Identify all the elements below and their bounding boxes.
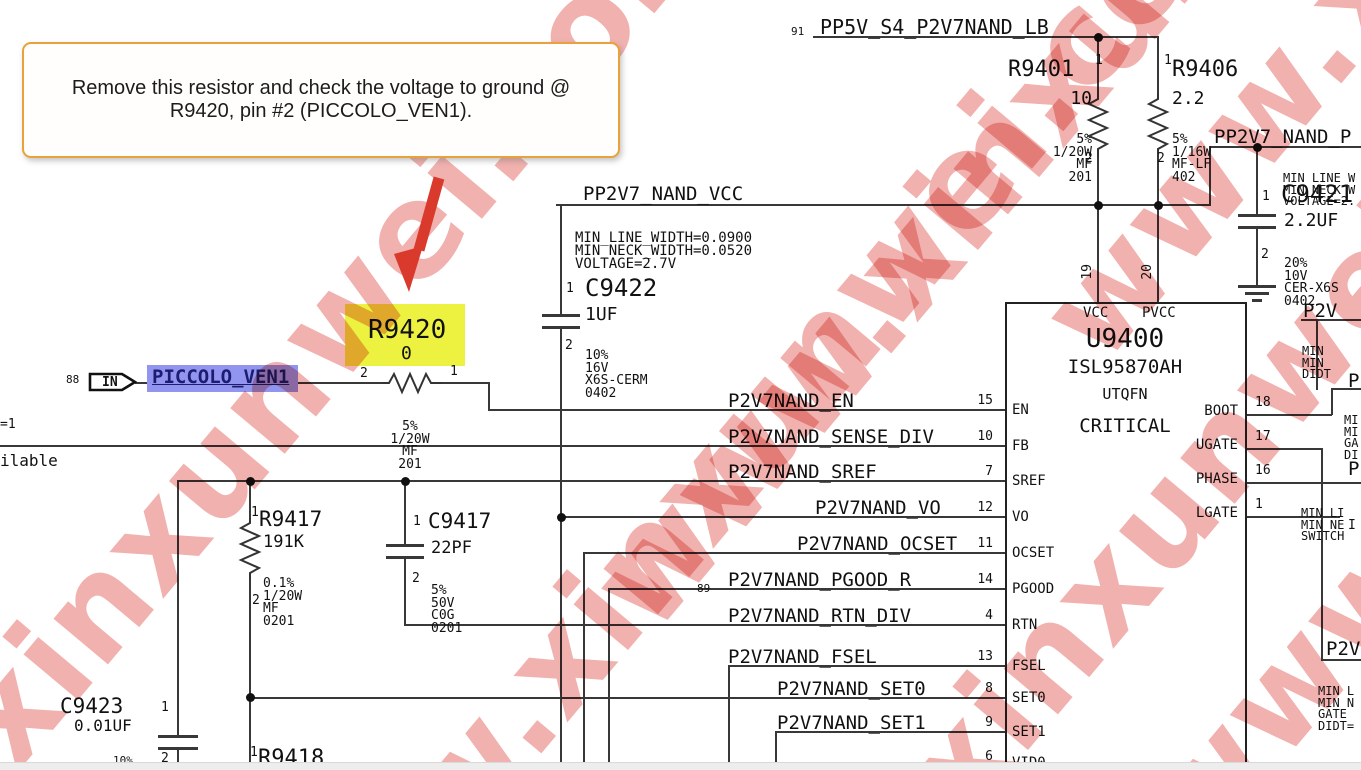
c9421-pin1: 1 <box>1262 190 1270 204</box>
pin-number: 17 <box>1255 430 1271 444</box>
wire <box>560 328 562 770</box>
net-fragment-boot2: P <box>1348 372 1359 392</box>
pin-number: 11 <box>955 537 993 551</box>
r9418-pin1: 1 <box>250 746 258 760</box>
net-p2v7nand-set0: P2V7NAND_SET0 <box>777 680 926 700</box>
u9400-pin-rtn: RTN <box>1012 618 1037 633</box>
wire <box>441 382 490 384</box>
u9400-pin-lgate: LGATE <box>1178 506 1238 521</box>
u9400-package: UTQFN <box>1005 387 1245 403</box>
net-p2v7nand-ocset: P2V7NAND_OCSET <box>797 535 957 555</box>
c9422-pin1: 1 <box>566 282 574 296</box>
r9406-pin2: 2 <box>1157 152 1165 166</box>
offpage-ref-88: 88 <box>66 374 79 386</box>
wire <box>249 578 251 770</box>
ground-bar <box>1245 292 1269 295</box>
wire <box>608 588 610 770</box>
net-p2v7nand-set1: P2V7NAND_SET1 <box>777 714 926 734</box>
wire <box>1256 228 1258 285</box>
pin-number: 8 <box>955 682 993 696</box>
c9421-pin2: 2 <box>1261 248 1269 262</box>
r9401-pin2: 2 <box>1085 152 1093 166</box>
wire <box>1245 448 1323 450</box>
wire <box>404 558 406 625</box>
r9420-value: 0 <box>401 345 412 364</box>
wire <box>1157 36 1159 94</box>
c9423-value: 0.01UF <box>74 718 132 735</box>
red-arrow <box>393 172 449 298</box>
net-p2v7nand-fsel: P2V7NAND_FSEL <box>728 648 877 668</box>
c9417-props: 5%50VC0G0201 <box>431 560 462 660</box>
net-fragment-lgate-props: MIN LMIN NGATEDIDT= <box>1318 663 1354 755</box>
u9400-pin-fsel: FSEL <box>1012 659 1046 674</box>
net-fragment-phase-i: I <box>1348 519 1356 533</box>
net-fragment-phase: P <box>1348 460 1359 480</box>
ground-bar <box>1238 285 1276 288</box>
c9417-pin2: 2 <box>412 572 420 586</box>
r9401-props: 5%1/20WMF201 <box>1008 109 1092 209</box>
wire <box>488 382 490 410</box>
wire <box>1331 389 1333 415</box>
horizontal-scrollbar[interactable] <box>0 762 1361 770</box>
u9400-pin-boot: BOOT <box>1178 404 1238 419</box>
c9423-pin1: 1 <box>161 701 169 715</box>
annotation-callout: Remove this resistor and check the volta… <box>22 42 620 158</box>
cap-plate <box>158 735 198 738</box>
pin-number: 10 <box>955 430 993 444</box>
wire <box>1097 205 1099 302</box>
net-p2v7nand-sref: P2V7NAND_SREF <box>728 463 877 483</box>
u9400-critical-note: CRITICAL <box>1005 417 1245 437</box>
pin-number: 7 <box>955 465 993 479</box>
junction-dot <box>246 477 255 486</box>
c9421-refdes: C9421 <box>1281 182 1353 207</box>
net-p2v7nand-sense-div: P2V7NAND_SENSE_DIV <box>728 428 934 448</box>
cap-plate <box>1238 214 1276 217</box>
resistor-symbol-r9406 <box>1145 93 1171 157</box>
u9400-pin19-number: 19 <box>1081 264 1095 280</box>
annotation-text: Remove this resistor and check the volta… <box>52 77 590 123</box>
wire <box>1256 146 1258 216</box>
pin-number: 4 <box>955 609 993 623</box>
net-p2v7nand-rtn-div: P2V7NAND_RTN_DIV <box>728 607 911 627</box>
input-port-label: IN <box>102 376 118 390</box>
left-fragment-ilable: ilable <box>0 453 58 470</box>
junction-dot <box>557 513 566 522</box>
net-pp2v7-nand-vcc: PP2V7_NAND_VCC <box>583 185 743 205</box>
net-pp5v-s4-p2v7nand-lb: PP5V_S4_P2V7NAND_LB <box>820 17 1049 38</box>
net-fragment-boot: P2V <box>1303 302 1337 322</box>
net-pp2v7-nand-p: PP2V7_NAND_P <box>1214 128 1351 148</box>
r9417-pin2: 2 <box>252 594 260 608</box>
wire <box>560 204 562 314</box>
pin-number: 16 <box>1255 464 1271 478</box>
wire <box>1097 154 1099 206</box>
r9401-value: 10 <box>1008 90 1092 109</box>
wire <box>1157 205 1159 302</box>
r9417-refdes: R9417 <box>259 508 322 530</box>
cap-plate <box>386 544 424 547</box>
u9400-pin-phase: PHASE <box>1178 472 1238 487</box>
r9417-pin1: 1 <box>251 506 259 520</box>
c9423-refdes: C9423 <box>60 695 123 717</box>
wire <box>1245 414 1332 416</box>
net-fragment-boot-props: MINMINDIDT <box>1302 323 1331 404</box>
net-p2v7nand-en: P2V7NAND_EN <box>728 392 854 412</box>
u9400-pin-set1: SET1 <box>1012 725 1046 740</box>
u9400-pin-fb: FB <box>1012 439 1029 454</box>
c9422-props: 10%16VX6S-CERM0402 <box>585 325 648 425</box>
junction-dot <box>1094 33 1103 42</box>
offpage-ref-89: 89 <box>697 583 710 595</box>
net-fragment-phase-props: MIN LIMIN NESWITCH <box>1301 485 1344 566</box>
u9400-pin-pgood: PGOOD <box>1012 582 1054 597</box>
c9422-value: 1UF <box>585 306 618 325</box>
pin-number: 12 <box>955 501 993 515</box>
pin-number: 1 <box>1255 498 1263 512</box>
pin-number: 15 <box>955 394 993 408</box>
u9400-pin-ocset: OCSET <box>1012 546 1054 561</box>
wire <box>177 480 179 735</box>
u9400-pin-ugate: UGATE <box>1178 438 1238 453</box>
c9422-refdes: C9422 <box>585 276 657 301</box>
u9400-pin-set0: SET0 <box>1012 691 1046 706</box>
r9420-props: 5%1/20WMF201 <box>375 396 445 496</box>
u9400-pin20-number: 20 <box>1141 264 1155 280</box>
r9406-value: 2.2 <box>1172 90 1205 109</box>
junction-dot <box>1154 201 1163 210</box>
offpage-ref-91: 91 <box>791 26 804 38</box>
r9406-refdes: R9406 <box>1172 58 1238 81</box>
junction-dot <box>1094 201 1103 210</box>
left-fragment-eq1: =1 <box>0 418 16 432</box>
r9417-value: 191K <box>263 534 304 552</box>
u9400-refdes: U9400 <box>1005 326 1245 353</box>
r9401-refdes: R9401 <box>1008 58 1074 81</box>
c9417-pin1: 1 <box>413 515 421 529</box>
u9400-partnumber: ISL95870AH <box>1005 358 1245 378</box>
pin-number: 13 <box>955 650 993 664</box>
r9420-pin2: 2 <box>360 367 368 381</box>
pin-number: 14 <box>955 573 993 587</box>
r9406-props: 5%1/16WMF-LF402 <box>1172 109 1211 209</box>
net-piccolo-ven1: PICCOLO_VEN1 <box>152 368 289 388</box>
u9400-pin-vcc: VCC <box>1083 306 1108 321</box>
schematic-page: U9400 ISL95870AH UTQFN CRITICAL VCC PVCC… <box>0 0 1361 770</box>
r9420-refdes: R9420 <box>368 317 446 344</box>
resistor-symbol-r9420 <box>383 370 441 396</box>
wire <box>583 552 585 770</box>
r9401-pin1: 1 <box>1095 54 1103 68</box>
pin-number: 18 <box>1255 396 1271 410</box>
r9417-props: 0.1%1/20WMF0201 <box>263 553 302 653</box>
c9417-refdes: C9417 <box>428 510 491 532</box>
c9421-value: 2.2UF <box>1284 212 1338 231</box>
wire <box>404 624 1005 626</box>
ground-bar <box>1252 299 1262 302</box>
u9400-pin-sref: SREF <box>1012 474 1046 489</box>
net-p2v7nand-pgood-r: P2V7NAND_PGOOD_R <box>728 571 911 591</box>
cap-plate <box>542 314 580 317</box>
junction-dot <box>246 693 255 702</box>
u9400-pin-pvcc: PVCC <box>1142 306 1176 321</box>
wire <box>178 480 1005 482</box>
c9422-pin2: 2 <box>565 339 573 353</box>
c9417-value: 22PF <box>431 540 472 558</box>
pin-number: 9 <box>955 716 993 730</box>
r9406-pin1: 1 <box>1164 54 1172 68</box>
net-fragment-lgate: P2V <box>1326 640 1360 660</box>
u9400-pin-en: EN <box>1012 403 1029 418</box>
r9420-pin1: 1 <box>450 365 458 379</box>
u9400-pin-vo: VO <box>1012 510 1029 525</box>
wire <box>728 665 730 770</box>
net-p2v7nand-vo: P2V7NAND_VO <box>815 499 941 519</box>
